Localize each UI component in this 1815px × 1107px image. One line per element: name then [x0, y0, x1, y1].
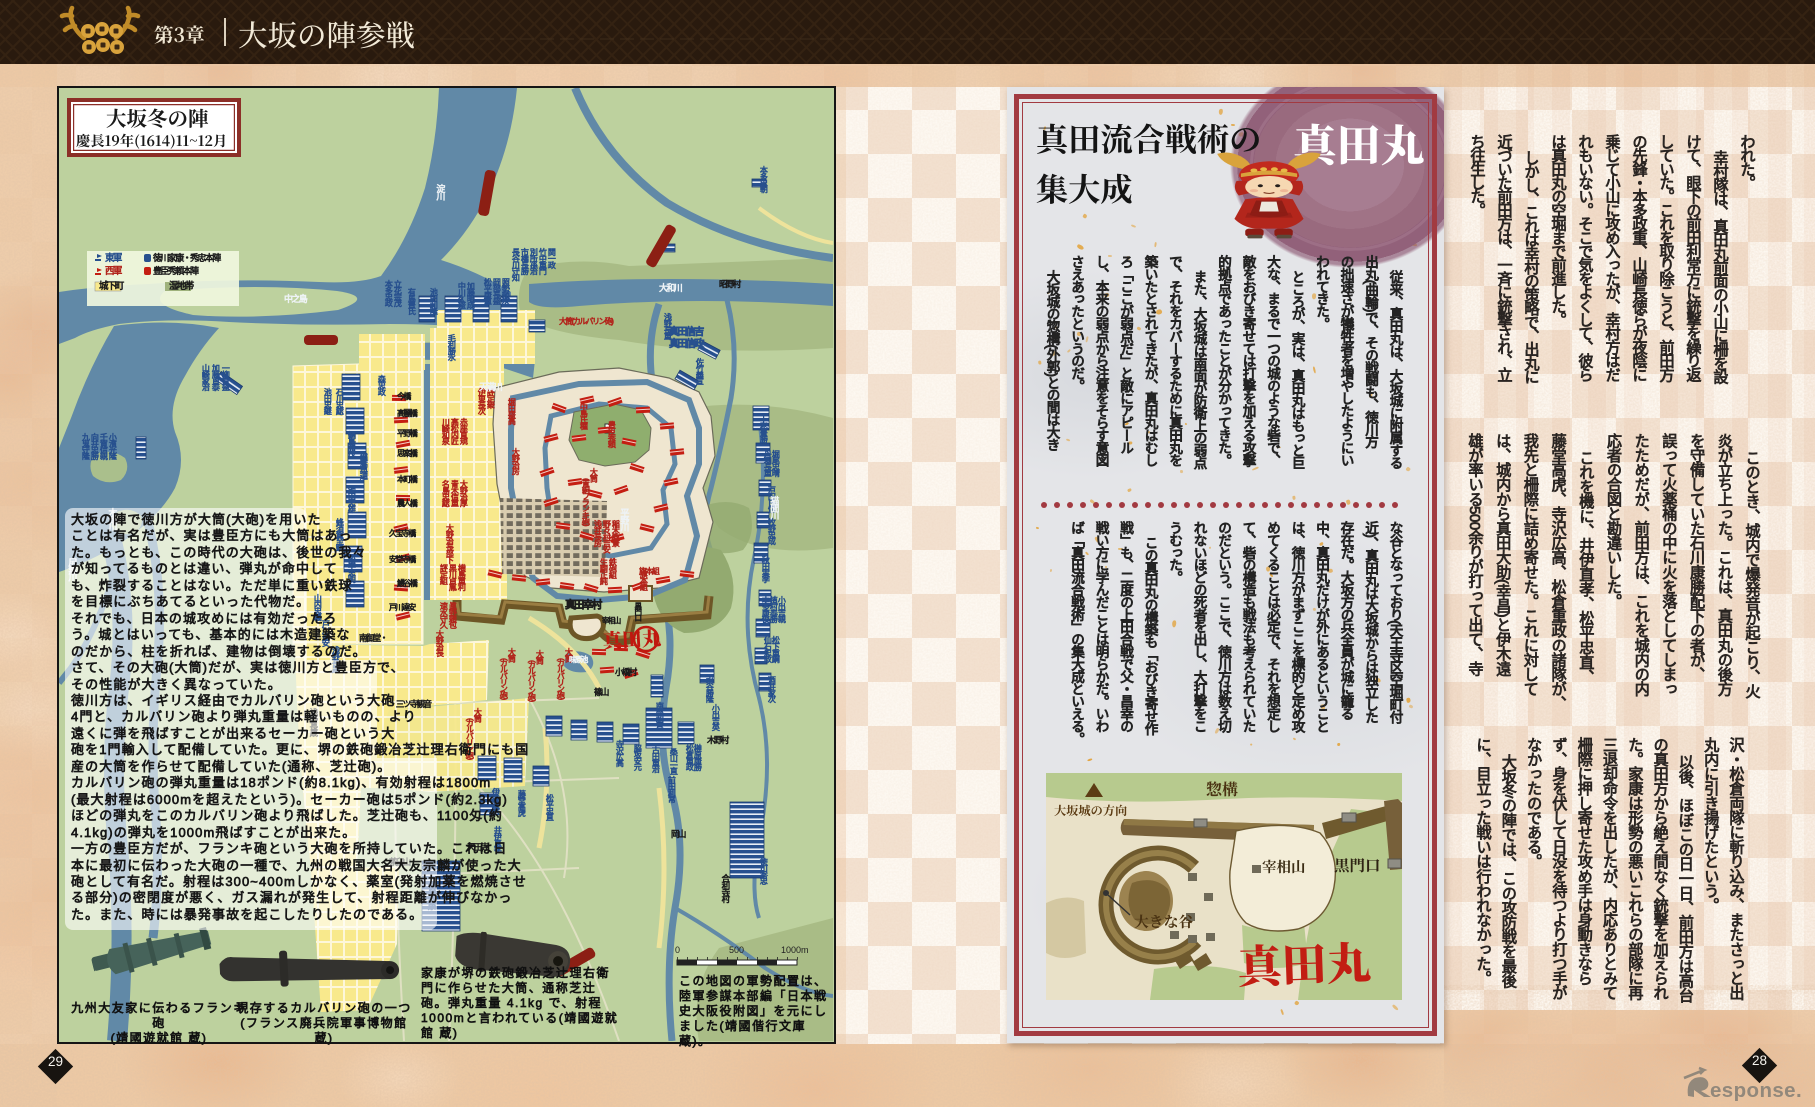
svg-text:0: 0: [675, 945, 680, 955]
svg-text:1000m: 1000m: [781, 945, 809, 955]
svg-text:esponse.: esponse.: [1710, 1079, 1802, 1102]
svg-text:500: 500: [729, 945, 744, 955]
